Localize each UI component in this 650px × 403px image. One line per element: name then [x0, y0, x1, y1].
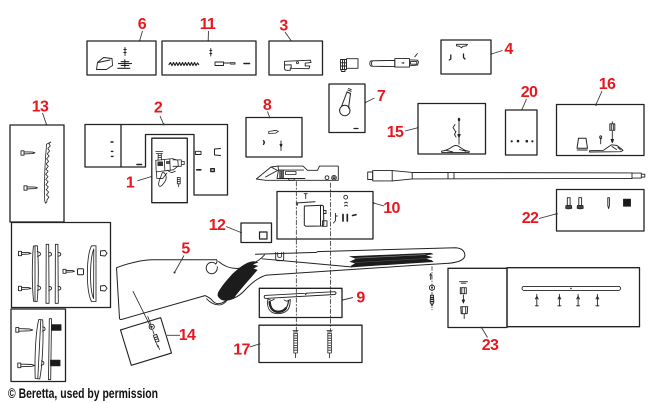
- svg-text:13: 13: [32, 99, 49, 116]
- svg-text:17: 17: [233, 342, 250, 359]
- svg-text:14: 14: [179, 327, 196, 344]
- svg-text:8: 8: [263, 97, 272, 114]
- svg-text:5: 5: [181, 241, 190, 258]
- svg-text:9: 9: [356, 290, 365, 307]
- svg-text:16: 16: [599, 76, 616, 93]
- svg-text:22: 22: [522, 210, 539, 227]
- svg-text:7: 7: [377, 88, 386, 105]
- svg-text:© Beretta, used by permission: © Beretta, used by permission: [8, 385, 158, 401]
- svg-text:15: 15: [387, 124, 404, 141]
- svg-text:12: 12: [209, 217, 226, 234]
- svg-text:1: 1: [126, 175, 135, 192]
- svg-text:10: 10: [383, 200, 400, 217]
- svg-text:4: 4: [504, 41, 513, 58]
- svg-text:2: 2: [154, 100, 163, 117]
- svg-text:3: 3: [279, 18, 288, 35]
- svg-text:6: 6: [138, 16, 147, 33]
- svg-text:11: 11: [200, 16, 216, 33]
- svg-text:20: 20: [521, 84, 538, 101]
- svg-text:23: 23: [482, 337, 499, 354]
